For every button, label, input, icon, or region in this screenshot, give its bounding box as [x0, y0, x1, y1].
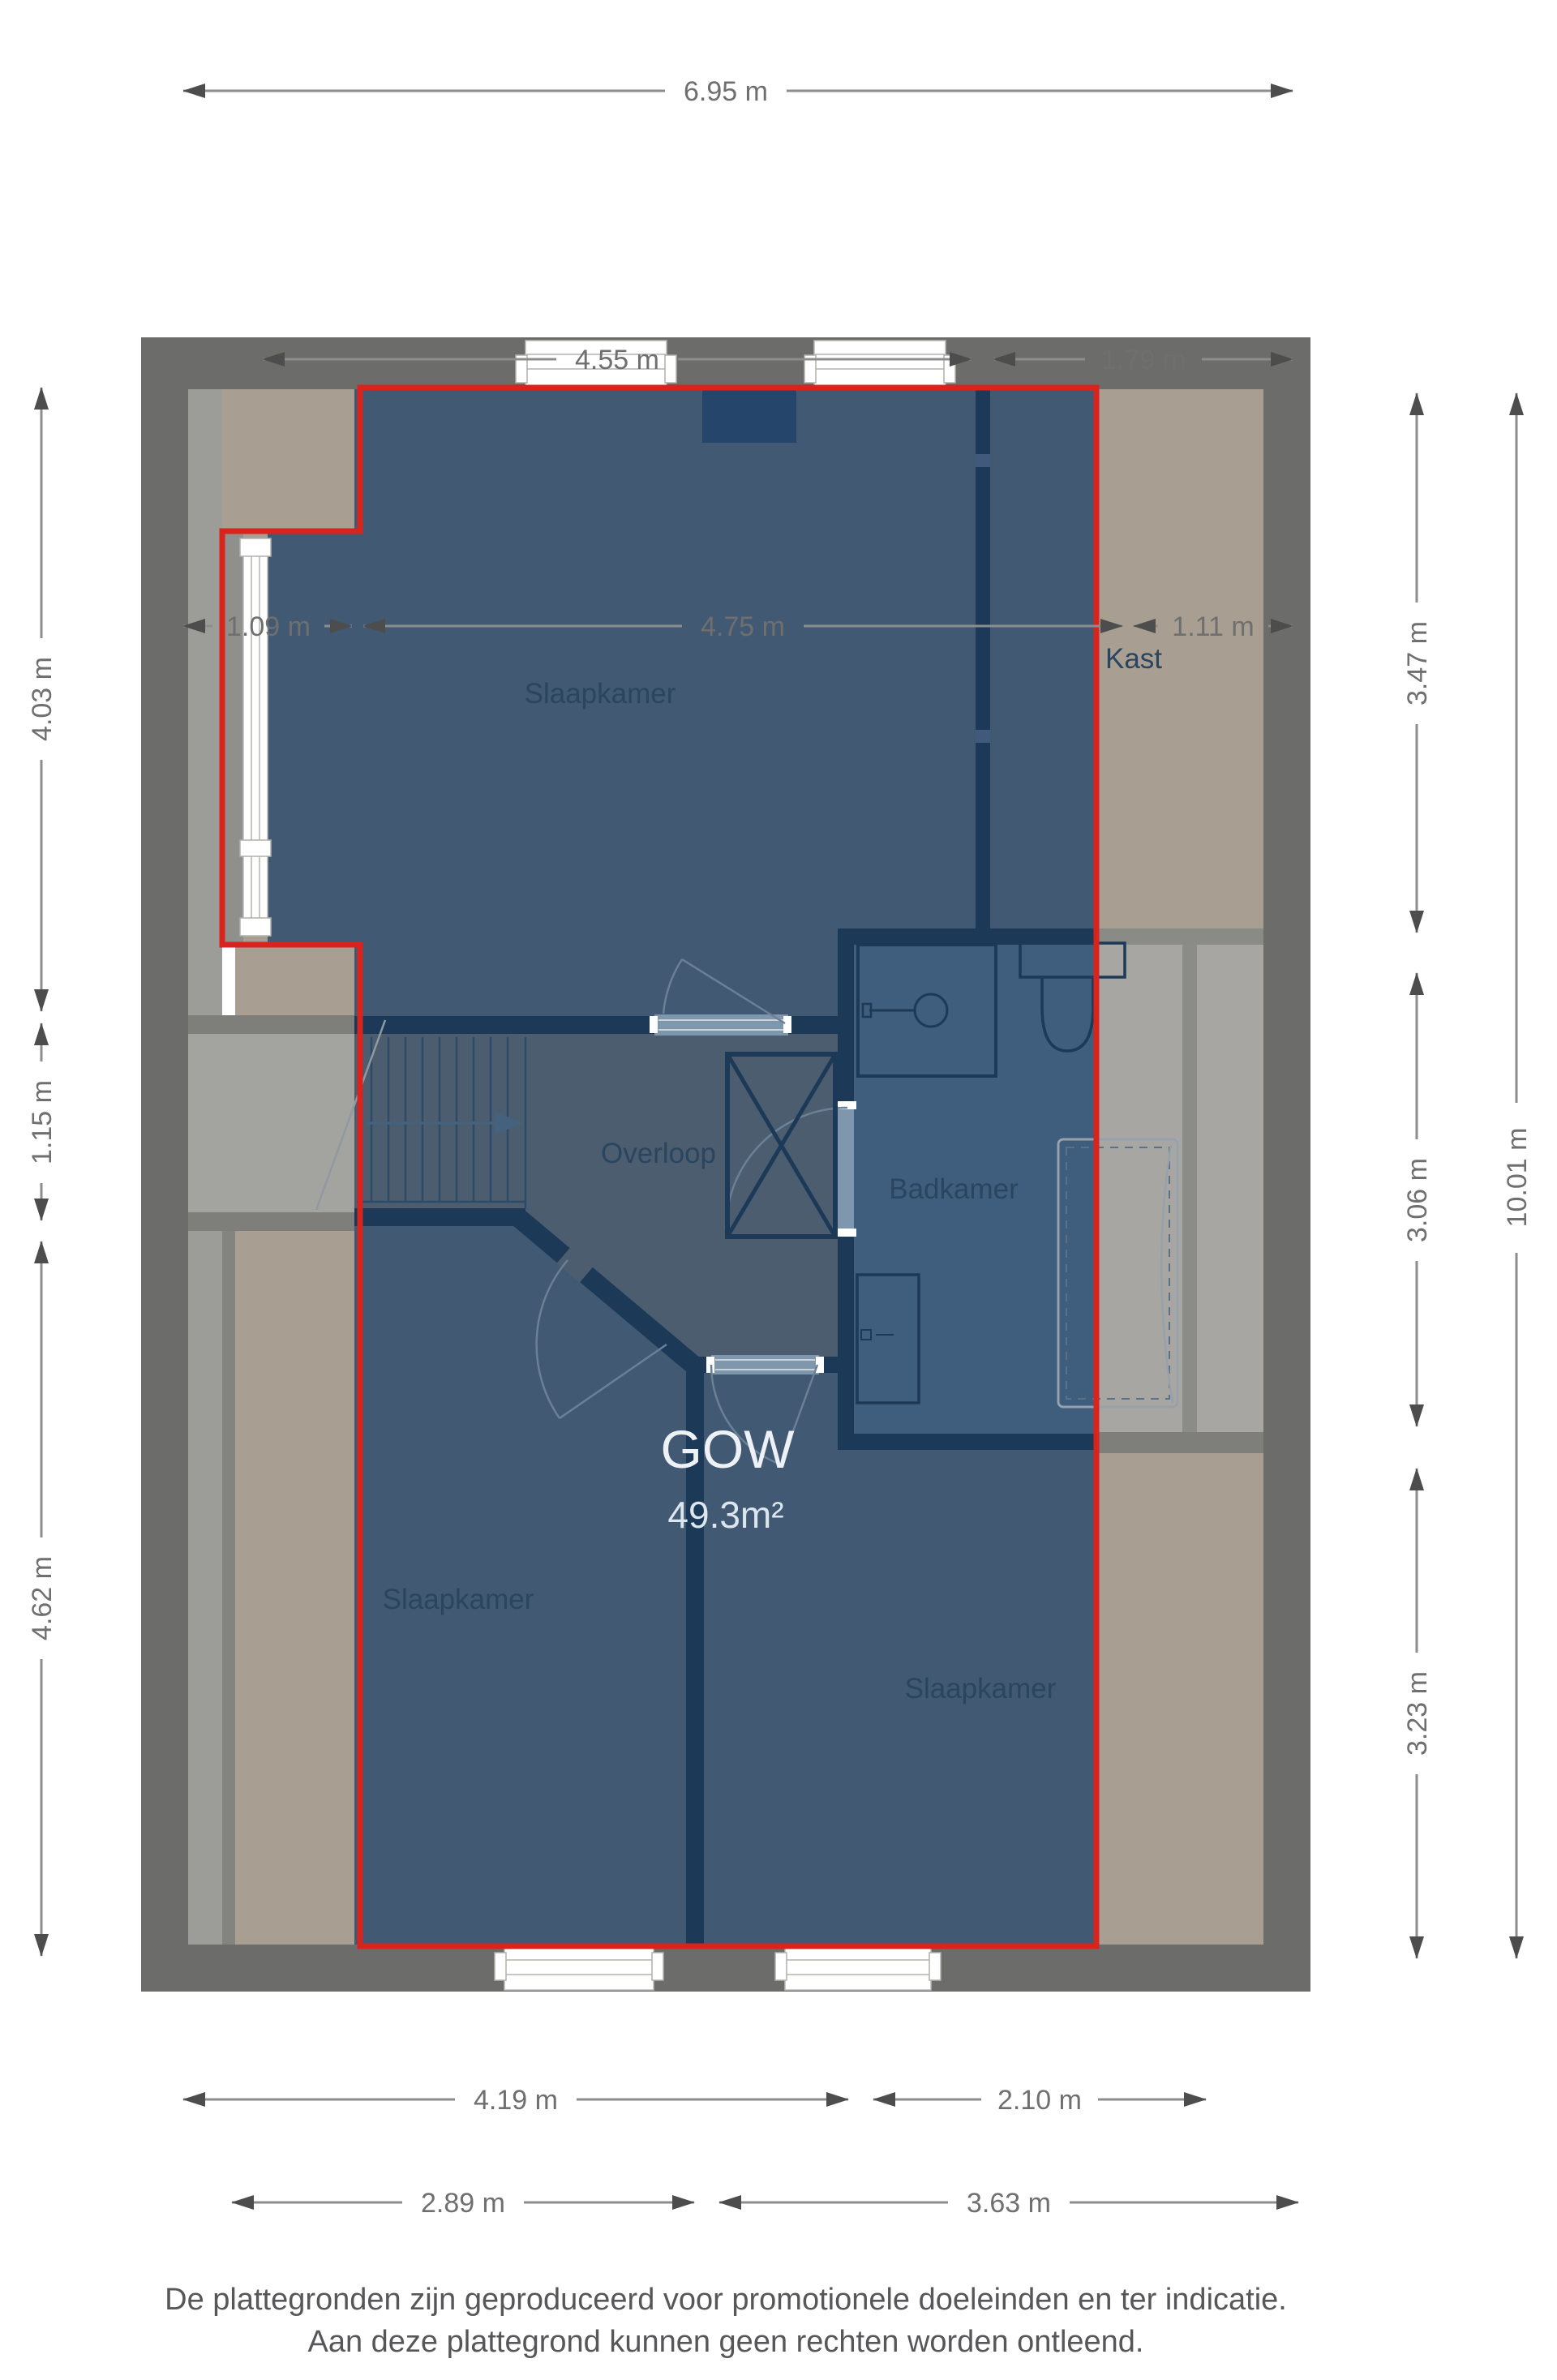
chimney-block	[702, 389, 796, 443]
window-top-right	[804, 341, 955, 386]
bedroom-top-floor	[268, 389, 1098, 1016]
bathroom-label: Badkamer	[889, 1173, 1019, 1205]
floorplan-canvas: Slaapkamer Kast Overloop Badkamer Slaapk…	[0, 0, 1557, 2380]
bedroom-bottom-left-label: Slaapkamer	[383, 1584, 534, 1615]
landing-label: Overloop	[601, 1138, 716, 1169]
window-bottom-right	[775, 1946, 941, 1990]
dim-bottom-row2-right: 3.63 m	[967, 2188, 1051, 2219]
dim-top-total: 6.95 m	[684, 76, 768, 107]
dimensions-bottom: 4.19 m 2.10 m 2.89 m 3.63 m	[183, 2085, 1298, 2219]
dim-top-row3-right: 1.11 m	[1172, 611, 1254, 642]
dim-right-mid: 3.06 m	[1402, 1158, 1433, 1242]
highlight-name-label: GOW	[661, 1419, 796, 1479]
disclaimer: De plattegronden zijn geproduceerd voor …	[165, 2283, 1287, 2359]
window-left	[240, 538, 271, 936]
dim-right-total: 10.01 m	[1502, 1128, 1533, 1228]
dim-right-bottom: 3.23 m	[1402, 1671, 1433, 1756]
bedroom-bottom-right-label: Slaapkamer	[905, 1673, 1057, 1705]
dim-bottom-row2-left: 2.89 m	[421, 2188, 505, 2219]
bedroom-top-label: Slaapkamer	[525, 678, 676, 710]
highlight-area-label: 49.3m²	[667, 1494, 783, 1536]
dim-bottom-row1-right: 2.10 m	[997, 2085, 1082, 2116]
dim-bottom-row1-left: 4.19 m	[474, 2085, 558, 2116]
dimensions-left: 4.03 m 1.15 m 4.62 m	[27, 388, 58, 1956]
dim-top-row2-right: 1.79 m	[1101, 345, 1186, 375]
dimensions-right: 3.47 m 3.06 m 3.23 m 10.01 m	[1402, 393, 1533, 1958]
disclaimer-line2: Aan deze plattegrond kunnen geen rechten…	[307, 2325, 1143, 2359]
floorplan-page: Slaapkamer Kast Overloop Badkamer Slaapk…	[0, 0, 1557, 2380]
dim-left-top: 4.03 m	[27, 657, 58, 741]
dim-left-mid: 1.15 m	[27, 1080, 58, 1164]
dim-right-top: 3.47 m	[1402, 621, 1433, 705]
disclaimer-line1: De plattegronden zijn geproduceerd voor …	[165, 2283, 1287, 2317]
dim-top-row2-left: 4.55 m	[575, 345, 659, 375]
dim-top-row3-left: 1.09 m	[226, 611, 311, 642]
dim-left-bottom: 4.62 m	[27, 1556, 58, 1640]
dim-top-row3-mid: 4.75 m	[701, 611, 785, 642]
closet-label: Kast	[1105, 643, 1162, 675]
window-bottom-left	[495, 1946, 663, 1990]
